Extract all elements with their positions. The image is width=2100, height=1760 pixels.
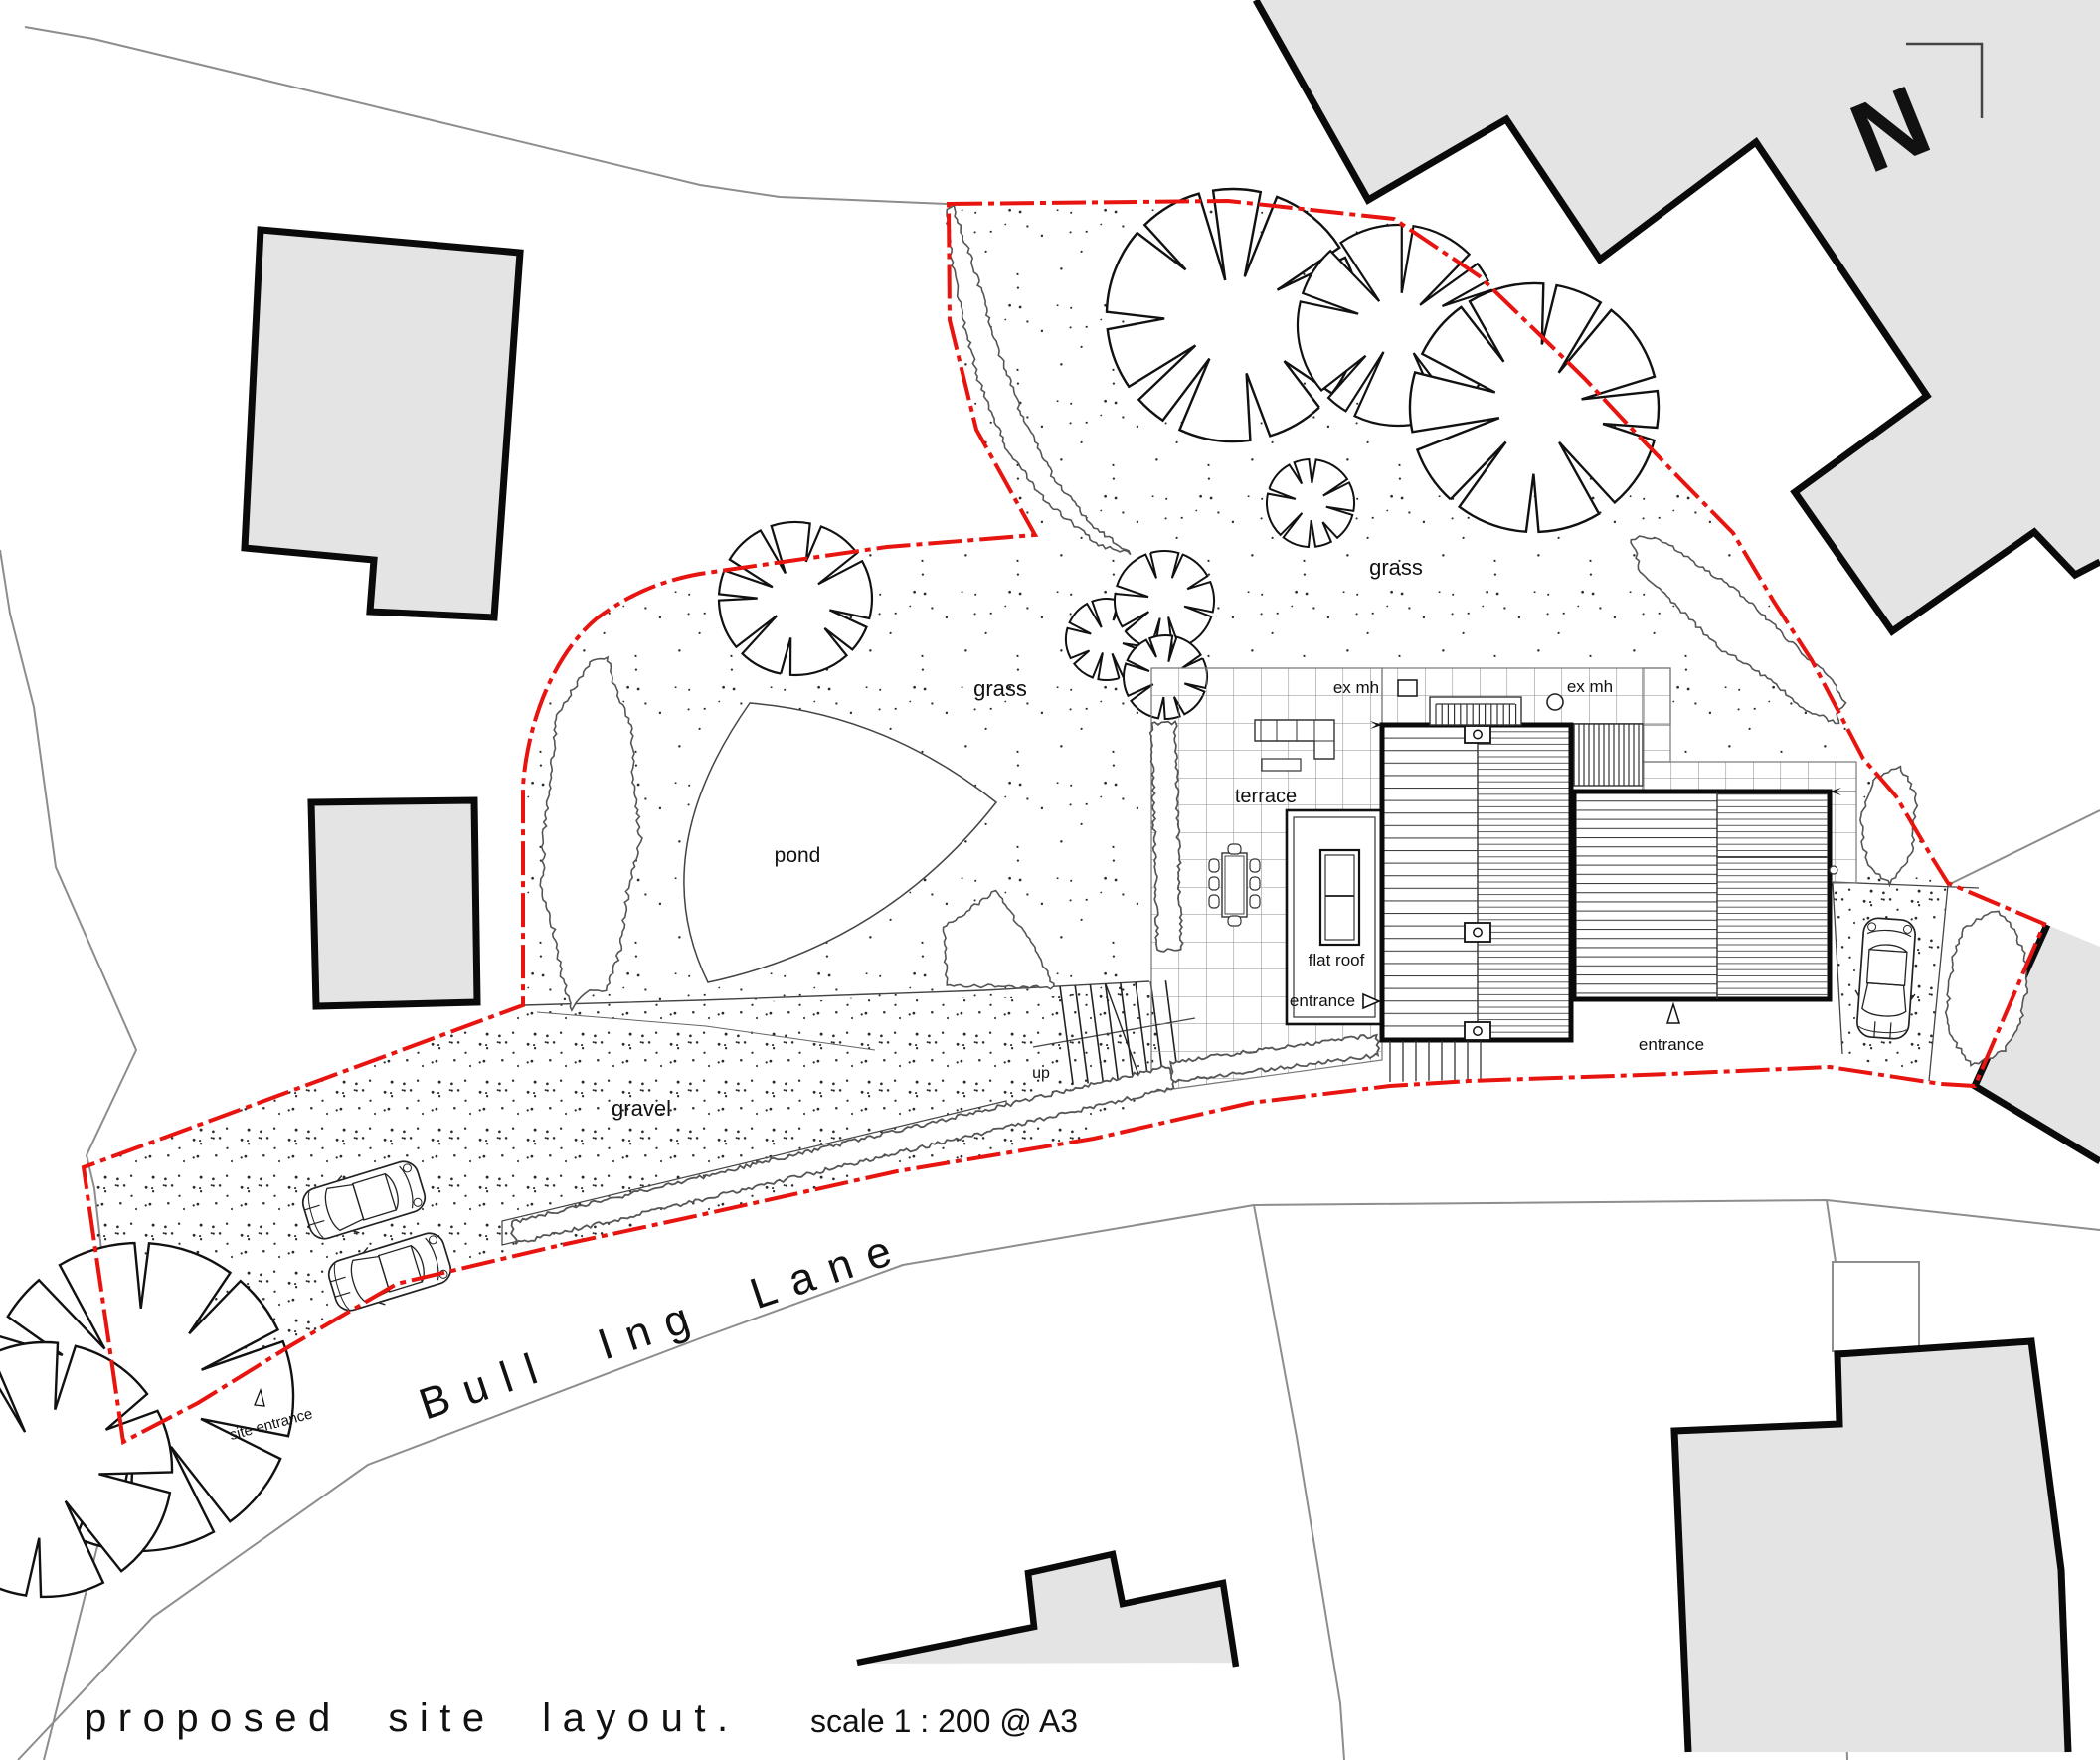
svg-text:flat roof: flat roof [1309,951,1365,969]
svg-text:scale 1 : 200 @ A3: scale 1 : 200 @ A3 [810,1703,1078,1739]
svg-text:pond: pond [775,844,821,867]
svg-text:grass: grass [973,676,1027,701]
svg-text:ex mh: ex mh [1567,677,1613,696]
svg-text:proposed site layout.: proposed site layout. [85,1696,740,1740]
svg-text:terrace: terrace [1235,786,1297,807]
svg-text:gravel: gravel [612,1096,671,1121]
svg-text:grass: grass [1369,555,1423,580]
svg-text:entrance: entrance [1639,1035,1704,1054]
svg-text:ex mh: ex mh [1333,678,1379,697]
svg-text:entrance: entrance [1290,991,1355,1010]
svg-text:up: up [1032,1065,1050,1082]
